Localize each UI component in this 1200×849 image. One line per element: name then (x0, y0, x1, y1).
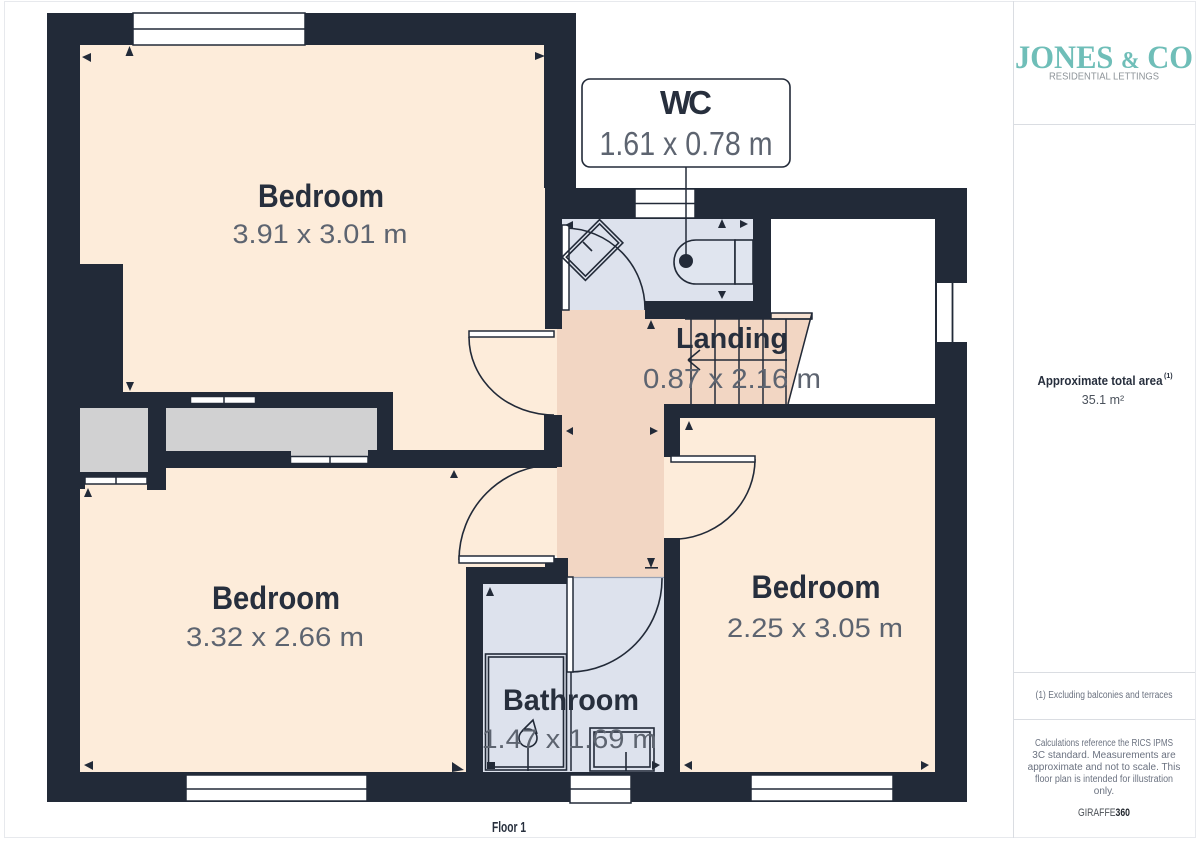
svg-text:Calculations reference the RIC: Calculations reference the RICS IPMS (1035, 738, 1173, 749)
svg-text:Landing: Landing (676, 323, 788, 355)
svg-text:Bedroom: Bedroom (752, 569, 881, 605)
svg-text:(1) Excluding balconies and te: (1) Excluding balconies and terraces (1036, 690, 1173, 701)
svg-text:3.91 x 3.01 m: 3.91 x 3.01 m (233, 219, 408, 249)
svg-text:floor plan is intended for ill: floor plan is intended for illustration (1035, 774, 1173, 785)
svg-text:Approximate total area: Approximate total area (1038, 374, 1164, 388)
svg-text:Bedroom: Bedroom (212, 580, 340, 616)
svg-text:Bathroom: Bathroom (503, 684, 639, 717)
svg-text:1.47 x 1.69 m: 1.47 x 1.69 m (482, 724, 657, 754)
svg-text:Bedroom: Bedroom (258, 178, 384, 214)
svg-text:approximate and not to scale.: approximate and not to scale. This (1028, 762, 1181, 773)
svg-text:3C standard. Measurements are: 3C standard. Measurements are (1032, 750, 1176, 761)
svg-text:only.: only. (1094, 786, 1114, 797)
svg-text:1.61 x 0.78 m: 1.61 x 0.78 m (600, 125, 773, 162)
svg-text:RESIDENTIAL LETTINGS: RESIDENTIAL LETTINGS (1049, 72, 1159, 83)
svg-text:(1): (1) (1164, 373, 1173, 380)
svg-text:3.32 x 2.66 m: 3.32 x 2.66 m (186, 622, 364, 652)
svg-text:0.87 x 2.16 m: 0.87 x 2.16 m (643, 363, 821, 394)
svg-text:GIRAFFE360: GIRAFFE360 (1078, 807, 1130, 819)
svg-text:2.25 x 3.05 m: 2.25 x 3.05 m (727, 613, 903, 643)
svg-text:35.1 m²: 35.1 m² (1082, 393, 1124, 407)
svg-text:WC: WC (660, 84, 712, 121)
svg-text:Floor 1: Floor 1 (492, 819, 526, 836)
